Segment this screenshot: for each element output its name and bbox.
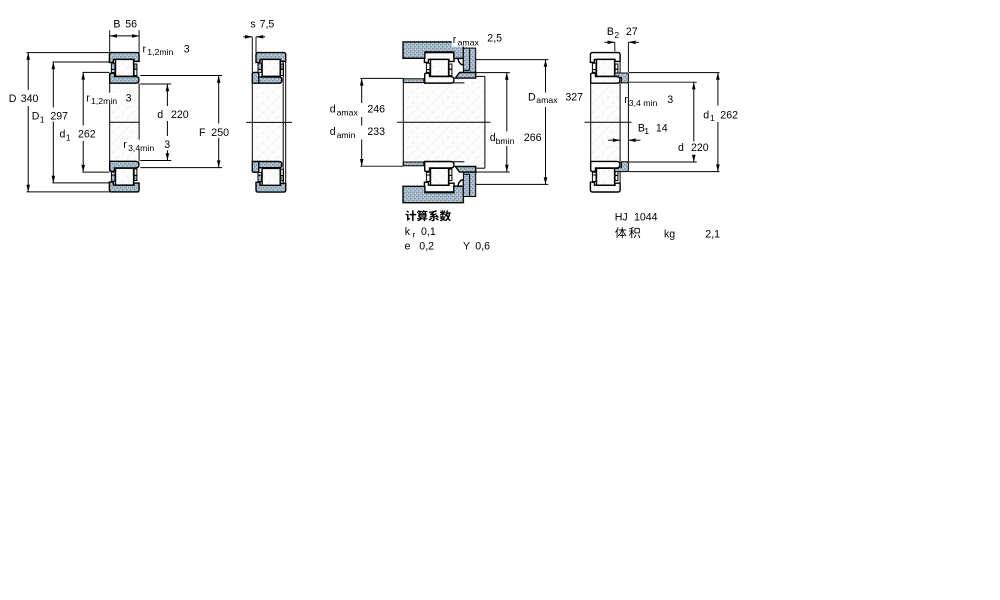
svg-text:220: 220 <box>691 142 709 154</box>
svg-text:r: r <box>143 43 147 55</box>
svg-text:Y: Y <box>463 240 470 252</box>
svg-text:D: D <box>528 91 536 103</box>
svg-text:d: d <box>703 109 709 121</box>
svg-text:233: 233 <box>367 126 385 138</box>
svg-text:HJ: HJ <box>615 211 628 223</box>
svg-text:2: 2 <box>614 30 619 40</box>
svg-text:amax: amax <box>458 38 480 48</box>
svg-text:D: D <box>9 93 17 105</box>
svg-text:27: 27 <box>626 26 638 38</box>
svg-text:0,6: 0,6 <box>475 240 490 252</box>
svg-text:amin: amin <box>337 130 356 140</box>
svg-text:d: d <box>60 129 66 141</box>
svg-text:3: 3 <box>667 94 673 106</box>
svg-text:3: 3 <box>164 139 170 151</box>
svg-text:250: 250 <box>211 127 229 139</box>
svg-text:1,2min: 1,2min <box>147 47 173 57</box>
svg-text:2,1: 2,1 <box>705 228 720 240</box>
svg-text:220: 220 <box>171 109 189 121</box>
svg-text:1: 1 <box>710 113 715 123</box>
svg-text:14: 14 <box>656 122 668 134</box>
svg-text:3: 3 <box>126 92 132 104</box>
svg-text:amax: amax <box>337 108 359 118</box>
svg-text:56: 56 <box>125 19 137 31</box>
svg-text:r: r <box>412 229 415 239</box>
svg-text:B: B <box>113 19 120 31</box>
svg-text:1: 1 <box>644 126 649 136</box>
svg-text:e: e <box>405 240 411 252</box>
svg-text:d: d <box>157 109 163 121</box>
svg-text:F: F <box>199 127 206 139</box>
svg-text:262: 262 <box>78 129 96 141</box>
svg-text:D: D <box>32 111 40 123</box>
svg-text:3: 3 <box>184 43 190 55</box>
svg-text:3,4 min: 3,4 min <box>629 98 658 108</box>
svg-text:0,1: 0,1 <box>421 226 436 238</box>
svg-text:3,4min: 3,4min <box>128 143 154 153</box>
svg-text:7,5: 7,5 <box>260 19 275 31</box>
svg-text:340: 340 <box>21 93 39 105</box>
svg-text:bmin: bmin <box>496 136 515 146</box>
svg-text:d: d <box>330 104 336 116</box>
svg-text:297: 297 <box>50 111 68 123</box>
svg-text:amax: amax <box>536 95 558 105</box>
svg-text:0,2: 0,2 <box>419 240 434 252</box>
svg-text:246: 246 <box>367 104 385 116</box>
svg-text:k: k <box>405 226 411 238</box>
svg-text:r: r <box>453 34 457 46</box>
svg-text:r: r <box>624 94 628 106</box>
svg-text:2,5: 2,5 <box>487 32 502 44</box>
svg-text:266: 266 <box>524 132 542 144</box>
svg-text:kg: kg <box>664 228 675 240</box>
svg-text:1: 1 <box>40 114 45 124</box>
svg-text:1,2min: 1,2min <box>91 96 117 106</box>
svg-text:d: d <box>330 126 336 138</box>
svg-text:1: 1 <box>66 132 71 142</box>
svg-text:r: r <box>123 139 127 151</box>
svg-text:1044: 1044 <box>634 211 658 223</box>
svg-text:s: s <box>250 19 255 31</box>
svg-text:327: 327 <box>565 91 583 103</box>
svg-text:B: B <box>607 26 614 38</box>
svg-text:d: d <box>678 142 684 154</box>
svg-text:262: 262 <box>720 109 738 121</box>
svg-text:r: r <box>86 92 90 104</box>
